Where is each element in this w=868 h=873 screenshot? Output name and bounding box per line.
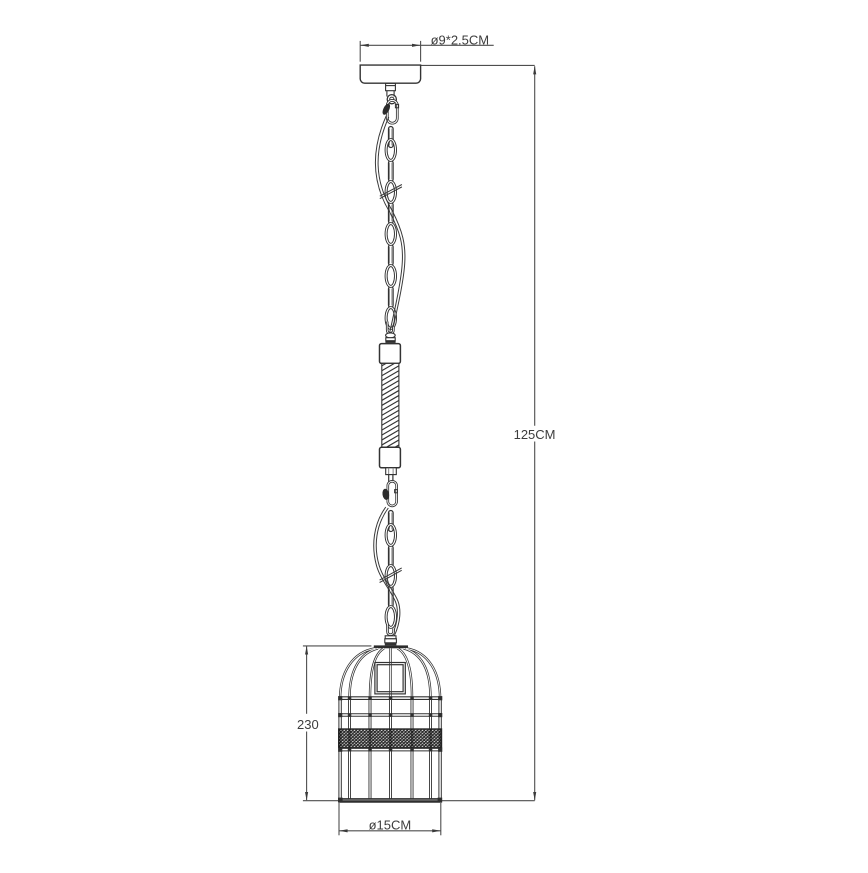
svg-text:ø9*2.5CM: ø9*2.5CM [431,32,490,47]
svg-text:ø15CM: ø15CM [369,818,412,833]
svg-text:125CM: 125CM [514,427,556,442]
svg-text:230: 230 [297,717,319,732]
